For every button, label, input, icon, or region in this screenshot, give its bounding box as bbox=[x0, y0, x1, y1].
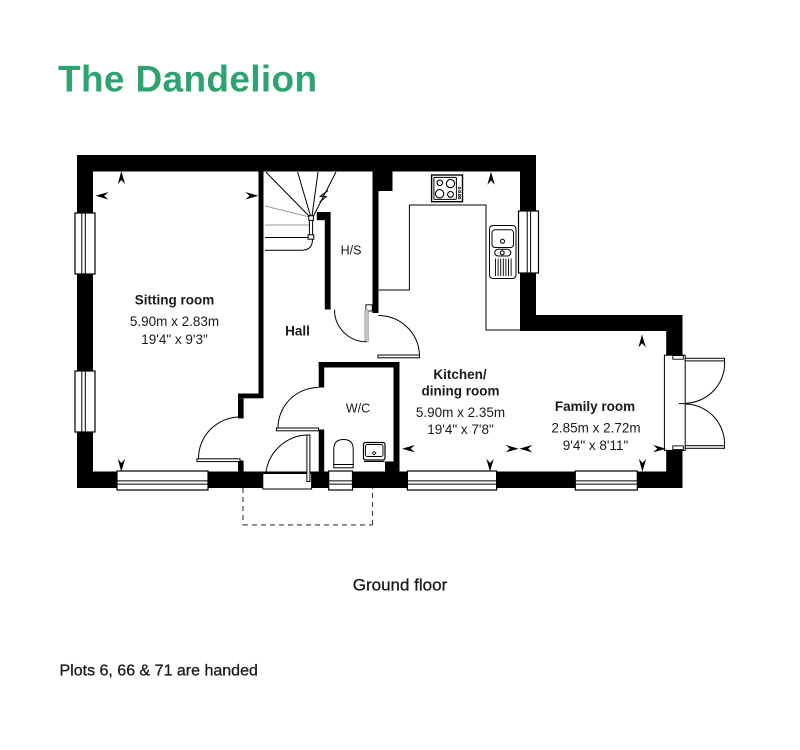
svg-text:9'4" x 8'11": 9'4" x 8'11" bbox=[563, 438, 629, 453]
svg-text:Kitchen/: Kitchen/ bbox=[433, 367, 487, 382]
svg-text:W/C: W/C bbox=[346, 402, 370, 416]
svg-text:Sitting room: Sitting room bbox=[135, 293, 215, 308]
svg-text:The Dandelion: The Dandelion bbox=[58, 59, 317, 100]
svg-text:Family room: Family room bbox=[555, 399, 635, 414]
svg-text:Ground floor: Ground floor bbox=[353, 576, 448, 595]
svg-text:19'4" x 9'3": 19'4" x 9'3" bbox=[141, 332, 208, 347]
svg-text:dining room: dining room bbox=[422, 384, 500, 399]
svg-text:Plots 6, 66 & 71 are handed: Plots 6, 66 & 71 are handed bbox=[60, 663, 258, 680]
svg-text:5.90m x 2.35m: 5.90m x 2.35m bbox=[416, 405, 505, 420]
svg-text:Hall: Hall bbox=[285, 324, 310, 339]
svg-text:5.90m x 2.83m: 5.90m x 2.83m bbox=[130, 314, 219, 329]
svg-text:2.85m x 2.72m: 2.85m x 2.72m bbox=[551, 421, 640, 436]
svg-text:19'4" x 7'8": 19'4" x 7'8" bbox=[427, 422, 494, 437]
svg-text:H/S: H/S bbox=[341, 244, 362, 258]
